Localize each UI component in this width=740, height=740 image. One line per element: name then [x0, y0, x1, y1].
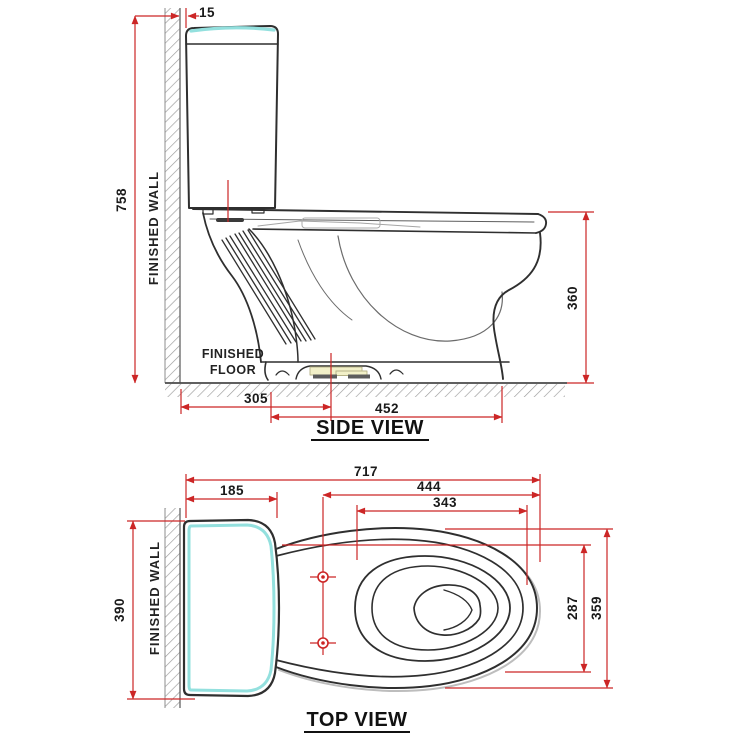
seat-top-line — [193, 209, 538, 214]
dim-758-label: 758 — [114, 188, 129, 212]
tank-plan-outline — [184, 520, 279, 696]
base-left-edge — [265, 362, 268, 380]
side-finished-wall-label: FINISHED WALL — [146, 171, 161, 285]
flange-dark-left — [313, 375, 337, 379]
toilet-side-profile — [186, 26, 546, 380]
side-view: 15 758 360 305 452 FINISHED WALL FINISHE… — [114, 5, 594, 440]
side-view-title: SIDE VIEW — [316, 417, 424, 439]
dim-360-label: 360 — [565, 286, 580, 310]
tank-outline — [186, 26, 278, 208]
seat-front-cap — [536, 214, 546, 233]
dim-343-label: 343 — [433, 495, 457, 510]
dim-15-label: 15 — [199, 5, 215, 20]
dim-305-label: 305 — [244, 391, 268, 406]
side-finished-wall-hatch — [165, 8, 180, 383]
toilet-top-plan — [184, 520, 540, 696]
seat-mechanism-ghost — [258, 221, 420, 227]
top-finished-wall-label: FINISHED WALL — [147, 541, 162, 655]
finished-floor-label-line2: FLOOR — [210, 363, 256, 377]
bowl-inner-curve-2 — [298, 240, 352, 320]
base-pad-left — [276, 371, 289, 375]
dim-359-label: 359 — [589, 596, 604, 620]
dim-717-label: 717 — [354, 464, 378, 479]
side-finished-floor-hatch — [165, 383, 567, 397]
dim-390-label: 390 — [112, 598, 127, 622]
dim-452-label: 452 — [375, 401, 399, 416]
dim-287-label: 287 — [565, 596, 580, 620]
bowl-front-outline — [493, 233, 540, 379]
top-finished-wall-hatch — [165, 508, 180, 708]
top-view-title: TOP VIEW — [306, 709, 407, 731]
base-pad-right — [390, 370, 403, 374]
seat-bottom-line — [253, 229, 536, 233]
dim-444-label: 444 — [417, 479, 441, 494]
finished-floor-label-line1: FINISHED — [202, 347, 264, 361]
drawing-canvas: 15 758 360 305 452 FINISHED WALL FINISHE… — [0, 0, 740, 740]
top-view: 717 185 444 343 390 287 359 FINISHED WAL… — [112, 464, 613, 732]
bowl-inner-curve — [338, 236, 502, 341]
flush-valve-seal — [216, 218, 244, 222]
flange-dark-right — [348, 375, 370, 379]
technical-drawing-toilet-dimensions: 15 758 360 305 452 FINISHED WALL FINISHE… — [0, 0, 740, 740]
seat-seam — [210, 219, 534, 222]
dim-185-label: 185 — [220, 483, 244, 498]
bowl-rear-outline — [203, 213, 261, 362]
